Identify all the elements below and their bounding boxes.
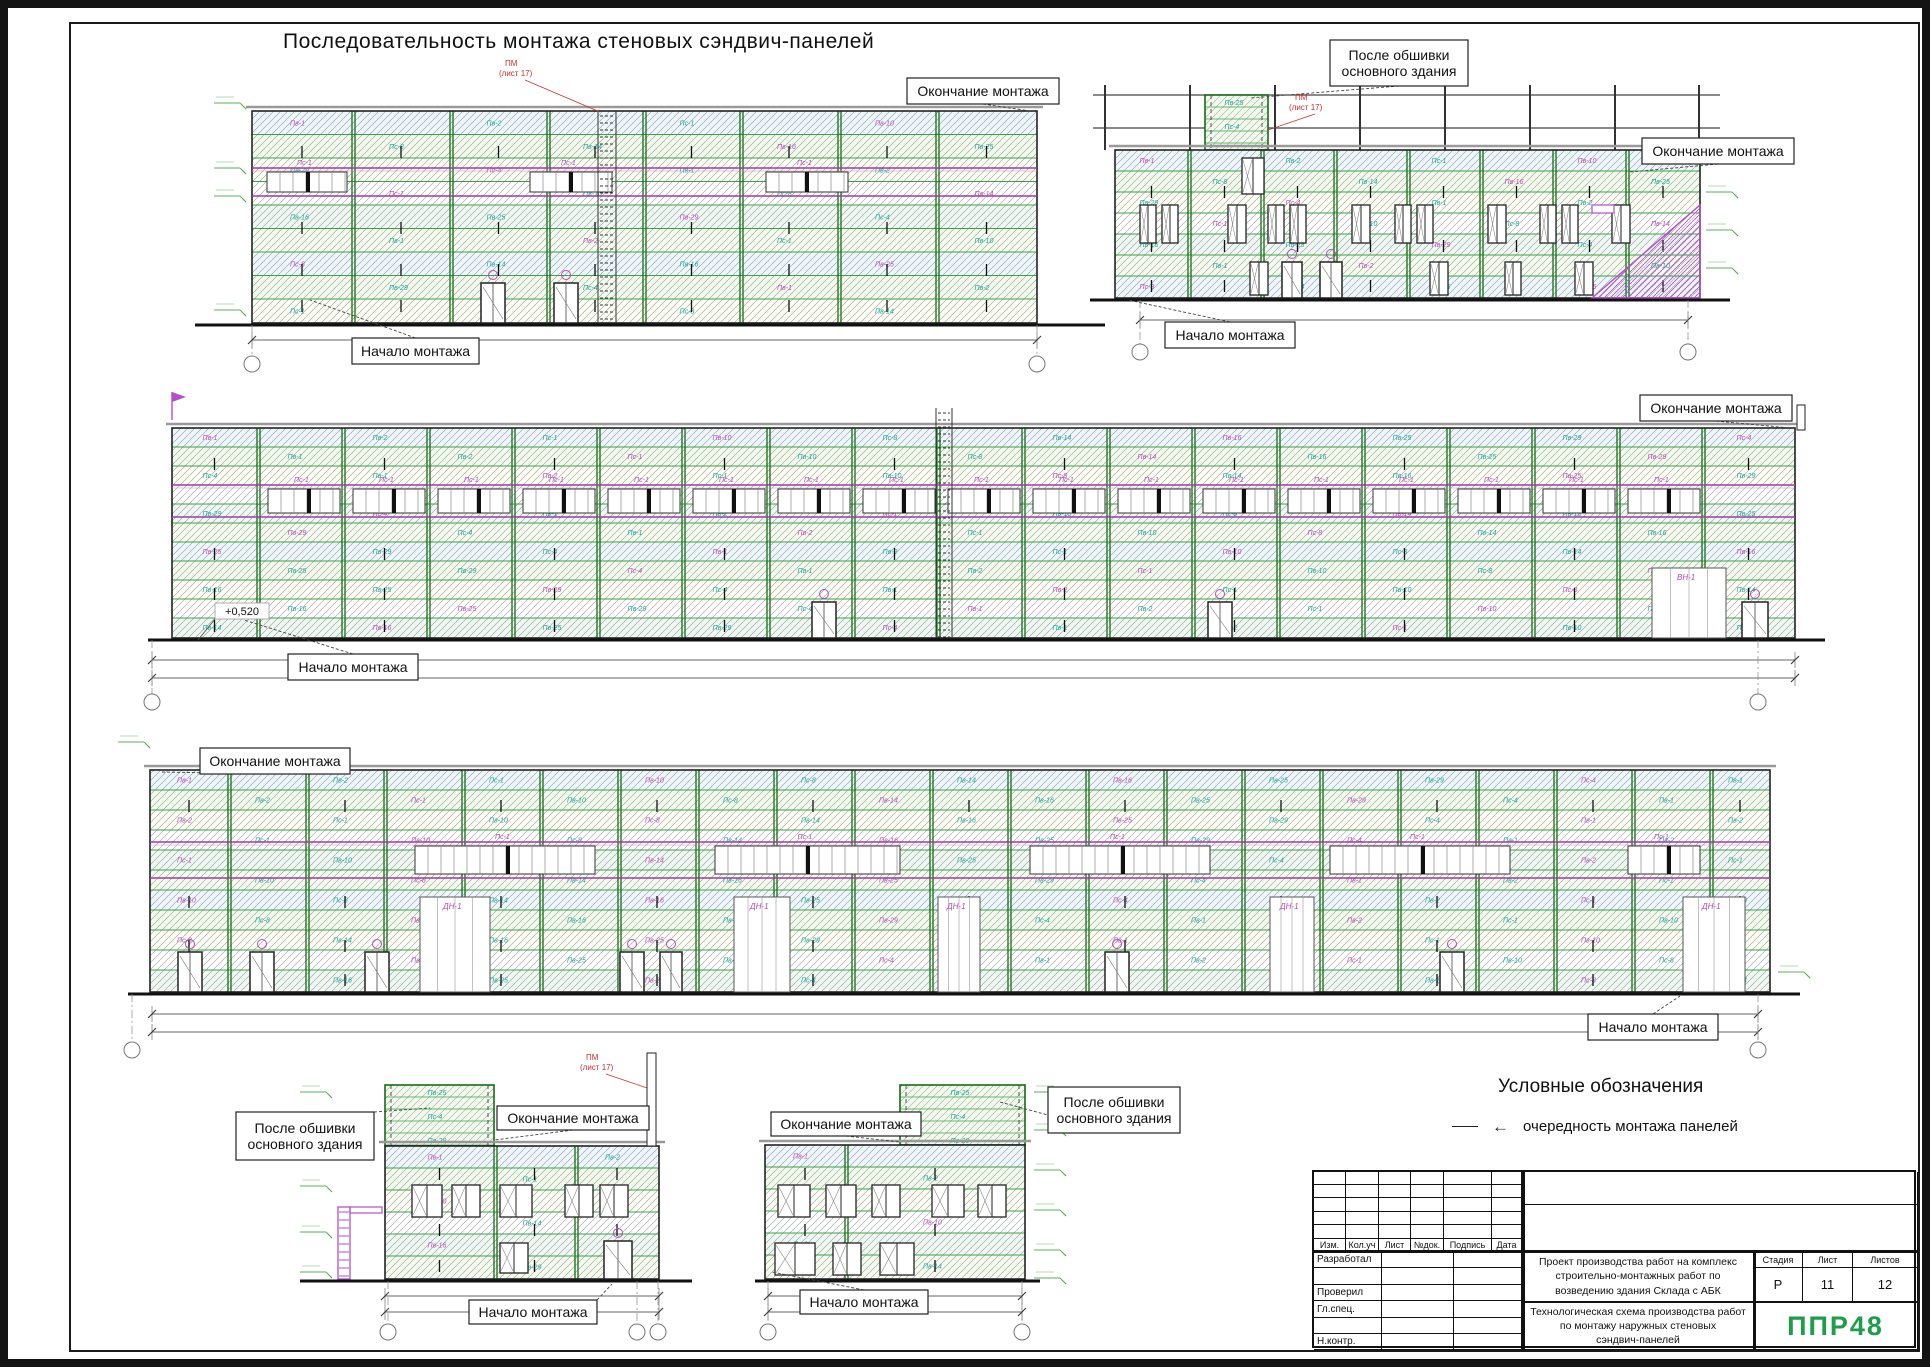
panel-mark: Пв-1 bbox=[1035, 957, 1050, 964]
panel-mark: Пв-25 bbox=[288, 568, 307, 575]
legend-title: Условные обозначения bbox=[1498, 1076, 1703, 1098]
panel-mark: Пв-14 bbox=[975, 191, 994, 198]
band-panel-mark: Пс-1 bbox=[1410, 834, 1425, 841]
panel-mark: Пв-16 bbox=[680, 262, 699, 269]
panel-mark: Пв-29 bbox=[628, 606, 647, 613]
band-panel-mark: Пс-1 bbox=[798, 834, 813, 841]
band-panel-mark: Пс-1 bbox=[974, 477, 989, 484]
gate-label: ДН-1 bbox=[442, 902, 462, 911]
callout-text: Окончание монтажа bbox=[1652, 143, 1784, 159]
band-panel-mark: Пс-1 bbox=[1144, 477, 1159, 484]
panel-mark: Пс-4 bbox=[798, 606, 813, 613]
panel-mark: Пв-25 bbox=[1191, 797, 1210, 804]
callout-text: Начало монтажа bbox=[478, 1304, 587, 1320]
panel-mark: Пс-1 bbox=[1347, 957, 1362, 964]
panel-mark: Пс-1 bbox=[1213, 221, 1228, 228]
band-panel-mark: Пс-1 bbox=[1229, 477, 1244, 484]
window-band bbox=[353, 489, 425, 513]
project-title-line: Проект производства работ на комплекс bbox=[1539, 1255, 1737, 1269]
axis-mark bbox=[760, 1324, 776, 1340]
axis-mark bbox=[380, 1324, 396, 1340]
role-label: Н.контр. bbox=[1314, 1334, 1382, 1350]
panel-mark: Пв-16 bbox=[428, 1243, 447, 1250]
role-label bbox=[1314, 1318, 1382, 1334]
panel-mark: Пс-4 bbox=[1578, 242, 1593, 249]
panel-mark: Пс-4 bbox=[1425, 817, 1440, 824]
panel-mark: Пв-29 bbox=[1191, 837, 1210, 844]
mast-callout: (лист 17) bbox=[1289, 103, 1323, 112]
panel-mark: Пс-1 bbox=[628, 454, 643, 461]
panel-mark: Пв-1 bbox=[389, 238, 404, 245]
panel-mark: Пв-2 bbox=[333, 777, 348, 784]
panel-mark: Пв-10 bbox=[177, 897, 196, 904]
callout-text: Начало монтажа bbox=[809, 1294, 918, 1310]
panel-mark: Пв-29 bbox=[1737, 473, 1756, 480]
elevation-value: +0,520 bbox=[225, 606, 259, 618]
panel-mark: Пв-2 bbox=[1347, 917, 1362, 924]
band-panel-mark: Пс-1 bbox=[1059, 477, 1074, 484]
titleblock-divider bbox=[1314, 1251, 1918, 1253]
band-panel-mark: Пс-1 bbox=[719, 477, 734, 484]
callout-text: Начало монтажа bbox=[298, 659, 407, 675]
revision-cell bbox=[1492, 1225, 1523, 1239]
panel-mark: Пв-10 bbox=[567, 797, 586, 804]
panel-mark: Пв-2 bbox=[1578, 200, 1593, 207]
panel-mark: Пв-29 bbox=[458, 568, 477, 575]
elevations-canvas: Пв-1Пв-2Пс-1Пв-10Пс-8Пв-14Пв-16Пв-25Пв-2… bbox=[0, 0, 1930, 1367]
band-panel-mark: Пс-1 bbox=[464, 477, 479, 484]
panel-mark: Пс-8 bbox=[680, 309, 695, 316]
panel-mark: Пв-1 bbox=[1140, 158, 1155, 165]
legend-item-label: очередность монтажа панелей bbox=[1523, 1118, 1738, 1135]
panel-mark: Пс-8 bbox=[1581, 977, 1596, 984]
callout-text: основного здания bbox=[248, 1136, 363, 1152]
panel-mark: Пв-1 bbox=[177, 777, 192, 784]
panel-mark: Пв-10 bbox=[1393, 587, 1412, 594]
panel-mark: Пс-8 bbox=[1393, 549, 1408, 556]
callout-text: Окончание монтажа bbox=[917, 83, 1049, 99]
signature-cell bbox=[1382, 1252, 1454, 1268]
panel-mark: Пв-16 bbox=[879, 837, 898, 844]
doc-code-cell bbox=[1523, 1205, 1918, 1252]
signature-cell bbox=[1382, 1318, 1454, 1334]
sheets-value: 12 bbox=[1853, 1268, 1918, 1303]
panel-mark: Пв-10 bbox=[1223, 549, 1242, 556]
legend-line-symbol bbox=[1452, 1126, 1478, 1127]
panel-mark: Пв-10 bbox=[1478, 606, 1497, 613]
revision-cell bbox=[1379, 1225, 1411, 1239]
signature-cell bbox=[1382, 1268, 1454, 1285]
band-panel-mark: Пс-1 bbox=[379, 477, 394, 484]
project-title-line: возведению здания Склада с АБК bbox=[1555, 1284, 1721, 1298]
panel-mark: Пв-14 bbox=[489, 897, 508, 904]
panel-mark: Пв-1 bbox=[1053, 625, 1068, 632]
mast bbox=[647, 1053, 656, 1146]
panel-mark: Пс-8 bbox=[723, 797, 738, 804]
panel-mark: Пв-14 bbox=[1053, 435, 1072, 442]
panel-mark: Пв-2 bbox=[1359, 263, 1374, 270]
panel-mark: Пс-1 bbox=[177, 857, 192, 864]
panel-mark: Пв-16 bbox=[1223, 435, 1242, 442]
panel-mark: Пв-29 bbox=[1648, 454, 1667, 461]
panel-mark: Пв-25 bbox=[1225, 100, 1244, 107]
band-panel-mark: Пс-1 bbox=[1569, 477, 1584, 484]
callout-text: Начало монтажа bbox=[361, 343, 470, 359]
panel-mark: Пв-25 bbox=[543, 625, 562, 632]
panel-mark: Пс-1 bbox=[1503, 917, 1518, 924]
panel-mark: Пв-29 bbox=[879, 917, 898, 924]
panel-mark: Пв-29 bbox=[1269, 817, 1288, 824]
panel-mark: Пв-14 bbox=[1563, 549, 1582, 556]
mast bbox=[1797, 405, 1805, 430]
revision-cell bbox=[1492, 1212, 1523, 1225]
panel-mark: Пв-1 bbox=[1213, 263, 1228, 270]
panel-mark: Пв-25 bbox=[1113, 817, 1132, 824]
revision-cell bbox=[1314, 1185, 1346, 1198]
revision-cell bbox=[1492, 1185, 1523, 1198]
callout-text: Окончание монтажа bbox=[507, 1110, 639, 1126]
panel-mark: Пс-8 bbox=[1140, 284, 1155, 291]
revision-cell bbox=[1379, 1185, 1411, 1198]
panel-mark: Пв-25 bbox=[951, 1090, 970, 1097]
panel-mark: Пв-29 bbox=[373, 549, 392, 556]
panel-mark: Пс-4 bbox=[543, 549, 558, 556]
panel-mark: Пв-14 bbox=[1359, 179, 1378, 186]
stage-header: Стадия bbox=[1754, 1252, 1803, 1268]
panel-mark: Пс-1 bbox=[543, 435, 558, 442]
revision-cell bbox=[1346, 1212, 1379, 1225]
gate-label: ДН-1 bbox=[1701, 902, 1721, 911]
mast-callout: ПМ bbox=[586, 1053, 599, 1062]
revision-cell bbox=[1411, 1225, 1444, 1239]
window-band bbox=[693, 489, 765, 513]
panel-mark: Пс-4 bbox=[1225, 124, 1240, 131]
axis-mark bbox=[1750, 694, 1766, 710]
panel-mark: Пв-25 bbox=[1478, 454, 1497, 461]
window-band bbox=[1033, 489, 1105, 513]
window-band bbox=[1288, 489, 1360, 513]
revision-cell bbox=[1492, 1172, 1523, 1185]
panel-mark: Пв-1 bbox=[1581, 817, 1596, 824]
revision-cell bbox=[1444, 1225, 1492, 1239]
panel-mark: Пв-25 bbox=[487, 215, 506, 222]
window-band bbox=[863, 489, 935, 513]
revision-cell bbox=[1444, 1198, 1492, 1212]
panel-mark: Пс-8 bbox=[1213, 179, 1228, 186]
panel-mark: Пс-1 bbox=[1425, 937, 1440, 944]
panel-mark: Пв-14 bbox=[645, 857, 664, 864]
revision-cell bbox=[1411, 1198, 1444, 1212]
panel-mark: Пв-14 bbox=[923, 1264, 942, 1271]
panel-mark: Пв-25 bbox=[203, 549, 222, 556]
callout-text: основного здания bbox=[1057, 1110, 1172, 1126]
panel-mark: Пв-1 bbox=[290, 121, 305, 128]
panel-mark: Пв-29 bbox=[1425, 777, 1444, 784]
project-title: Проект производства работ на комплексстр… bbox=[1523, 1252, 1754, 1303]
revision-cell bbox=[1411, 1185, 1444, 1198]
window-band bbox=[1458, 489, 1530, 513]
panel-mark: Пв-29 bbox=[801, 937, 820, 944]
panel-mark: Пс-1 bbox=[389, 191, 404, 198]
panel-mark: Пс-1 bbox=[1138, 568, 1153, 575]
role-label: Разработал bbox=[1314, 1252, 1382, 1268]
panel-mark: Пс-1 bbox=[411, 797, 426, 804]
callout-text: Начало монтажа bbox=[1175, 327, 1284, 343]
panel-mark: Пв-1 bbox=[793, 1154, 808, 1161]
panel-mark: Пв-2 bbox=[373, 435, 388, 442]
panel-mark: Пв-1 bbox=[1191, 917, 1206, 924]
panel-mark: Пс-8 bbox=[1478, 568, 1493, 575]
panel-mark: Пс-4 bbox=[875, 215, 890, 222]
panel-mark: Пс-4 bbox=[1035, 917, 1050, 924]
window-band bbox=[438, 489, 510, 513]
panel-mark: Пв-25 bbox=[1651, 179, 1670, 186]
panel-mark: Пв-10 bbox=[713, 435, 732, 442]
panel-mark: Пс-1 bbox=[290, 309, 305, 316]
date-cell bbox=[1454, 1318, 1523, 1334]
titleblock-divider bbox=[1523, 1172, 1525, 1350]
panel-mark: Пв-16 bbox=[1113, 777, 1132, 784]
revision-cell bbox=[1411, 1172, 1444, 1185]
window-band bbox=[608, 489, 680, 513]
panel-mark: Пв-1 bbox=[777, 285, 792, 292]
callout-text: основного здания bbox=[1342, 63, 1457, 79]
panel-mark: Пс-4 bbox=[583, 285, 598, 292]
panel-mark: Пв-14 bbox=[583, 144, 602, 151]
panel-mark: Пв-1 bbox=[1659, 797, 1674, 804]
panel-mark: Пв-14 bbox=[957, 777, 976, 784]
panel-mark: Пс-4 bbox=[1113, 897, 1128, 904]
revision-cell bbox=[1379, 1212, 1411, 1225]
panel-mark: Пв-10 bbox=[798, 454, 817, 461]
band-panel-mark: Пс-1 bbox=[1654, 477, 1669, 484]
gate-label: ДН-1 bbox=[946, 902, 966, 911]
panel-mark: Пв-14 bbox=[523, 1221, 542, 1228]
axis-mark bbox=[1750, 1042, 1766, 1058]
panel-mark: Пс-8 bbox=[1505, 221, 1520, 228]
band-panel-mark: Пс-1 bbox=[297, 160, 312, 167]
panel-mark: Пв-16 bbox=[333, 977, 352, 984]
sheet-value: 11 bbox=[1803, 1268, 1853, 1303]
callout-text: Начало монтажа bbox=[1598, 1019, 1707, 1035]
panel-mark: Пв-14 bbox=[723, 837, 742, 844]
panel-mark: Пв-2 bbox=[458, 454, 473, 461]
panel-mark: Пв-14 bbox=[1651, 221, 1670, 228]
panel-mark: Пв-29 bbox=[1432, 242, 1451, 249]
date-cell bbox=[1454, 1285, 1523, 1301]
panel-mark: Пв-10 bbox=[1138, 530, 1157, 537]
panel-mark: Пс-8 bbox=[968, 454, 983, 461]
panel-mark: Пв-25 bbox=[489, 977, 508, 984]
panel-mark: Пв-1 bbox=[288, 454, 303, 461]
panel-mark: Пв-16 bbox=[290, 215, 309, 222]
panel-mark: Пс-4 bbox=[1347, 837, 1362, 844]
band-panel-mark: Пс-1 bbox=[549, 477, 564, 484]
band-panel-mark: Пс-1 bbox=[889, 477, 904, 484]
callout-text: Окончание монтажа bbox=[780, 1116, 912, 1132]
project-title-line: строительно-монтажных работ по bbox=[1556, 1269, 1721, 1283]
panel-mark: Пс-8 bbox=[389, 144, 404, 151]
window-band bbox=[1628, 489, 1700, 513]
panel-mark: Пс-4 bbox=[628, 568, 643, 575]
panel-mark: Пв-29 bbox=[1347, 797, 1366, 804]
band-panel-mark: Пс-1 bbox=[495, 834, 510, 841]
panel-mark: Пс-1 bbox=[1053, 549, 1068, 556]
panel-mark: Пв-10 bbox=[489, 817, 508, 824]
panel-mark: Пв-1 bbox=[1503, 837, 1518, 844]
panel-mark: Пс-8 bbox=[177, 937, 192, 944]
panel-mark: Пв-1 bbox=[713, 549, 728, 556]
panel-mark: Пв-2 bbox=[923, 1176, 938, 1183]
panel-mark: Пс-4 bbox=[951, 1114, 966, 1121]
panel-mark: Пс-8 bbox=[801, 777, 816, 784]
revision-cell bbox=[1379, 1198, 1411, 1212]
panel-mark: Пв-2 bbox=[975, 285, 990, 292]
panel-mark: Пв-10 bbox=[875, 121, 894, 128]
panel-mark: Пв-1 bbox=[1432, 200, 1447, 207]
mast-callout: (лист 17) bbox=[580, 1063, 614, 1072]
panel-mark: Пв-1 bbox=[428, 1155, 443, 1162]
panel-mark: Пв-25 bbox=[428, 1090, 447, 1097]
panel-mark: Пв-29 bbox=[389, 285, 408, 292]
panel-mark: Пс-1 bbox=[333, 817, 348, 824]
panel-mark: Пв-10 bbox=[411, 837, 430, 844]
panel-mark: Пв-2 bbox=[1138, 606, 1153, 613]
revision-cell bbox=[1314, 1212, 1346, 1225]
panel-mark: Пв-25 bbox=[645, 937, 664, 944]
panel-mark: Пв-16 bbox=[957, 817, 976, 824]
band-panel-mark: Пс-1 bbox=[1314, 477, 1329, 484]
panel-mark: Пв-2 bbox=[1728, 817, 1743, 824]
role-label bbox=[1314, 1268, 1382, 1285]
panel-mark: Пв-16 bbox=[645, 897, 664, 904]
panel-mark: Пс-4 bbox=[713, 587, 728, 594]
panel-mark: Пв-16 bbox=[777, 144, 796, 151]
panel-mark: Пв-25 bbox=[458, 606, 477, 613]
sheet-main-title: Последовательность монтажа стеновых сэнд… bbox=[283, 30, 874, 54]
panel-mark: Пв-2 bbox=[1053, 587, 1068, 594]
panel-mark: Пв-25 bbox=[975, 144, 994, 151]
window-band bbox=[1118, 489, 1190, 513]
band-panel-mark: Пс-1 bbox=[561, 160, 576, 167]
revision-cell bbox=[1346, 1172, 1379, 1185]
axis-mark bbox=[1132, 344, 1148, 360]
panel-mark: Пв-1 bbox=[1728, 777, 1743, 784]
panel-mark: Пв-16 bbox=[1308, 454, 1327, 461]
panel-mark: Пв-25 bbox=[567, 957, 586, 964]
panel-mark: Пс-8 bbox=[1659, 957, 1674, 964]
panel-mark: Пс-8 bbox=[567, 837, 582, 844]
signature-cell bbox=[1382, 1285, 1454, 1301]
panel-mark: Пв-25 bbox=[1035, 837, 1054, 844]
revision-cell bbox=[1411, 1212, 1444, 1225]
window-band bbox=[415, 846, 595, 874]
panel-mark: Пс-4 bbox=[801, 977, 816, 984]
panel-mark: Пв-29 bbox=[713, 625, 732, 632]
axis-mark bbox=[244, 356, 260, 372]
panel-mark: Пв-10 bbox=[1581, 937, 1600, 944]
panel-mark: Пв-2 bbox=[1425, 897, 1440, 904]
sheet-header: Лист bbox=[1803, 1252, 1853, 1268]
panel-mark: Пв-1 bbox=[968, 606, 983, 613]
revision-cell bbox=[1314, 1198, 1346, 1212]
axis-mark bbox=[144, 694, 160, 710]
role-label: Проверил bbox=[1314, 1285, 1382, 1301]
panel-mark: Пс-1 bbox=[1581, 897, 1596, 904]
band-panel-mark: Пс-1 bbox=[1654, 834, 1669, 841]
panel-mark: Пв-2 bbox=[968, 568, 983, 575]
callout-text: После обшивки bbox=[255, 1120, 356, 1136]
mast-callout: (лист 17) bbox=[499, 69, 533, 78]
panel-mark: Пв-16 bbox=[288, 606, 307, 613]
panel-mark: Пс-1 bbox=[489, 777, 504, 784]
panel-mark: Пв-2 bbox=[583, 238, 598, 245]
panel-mark: Пс-8 bbox=[290, 262, 305, 269]
revision-cell bbox=[1379, 1172, 1411, 1185]
panel-mark: Пв-16 bbox=[1505, 179, 1524, 186]
stage-value: Р bbox=[1754, 1268, 1803, 1303]
panel-mark: Пв-10 bbox=[1503, 957, 1522, 964]
panel-mark: Пс-4 bbox=[1581, 777, 1596, 784]
panel-mark: Пв-25 bbox=[875, 262, 894, 269]
axis-mark bbox=[1029, 356, 1045, 372]
panel-mark: Пв-16 bbox=[1035, 797, 1054, 804]
revision-cell bbox=[1492, 1198, 1523, 1212]
panel-mark: Пс-1 bbox=[1728, 857, 1743, 864]
panel-mark: Пв-10 bbox=[1659, 917, 1678, 924]
date-cell bbox=[1454, 1252, 1523, 1268]
panel-mark: Пв-2 bbox=[1191, 957, 1206, 964]
window-band bbox=[1030, 846, 1210, 874]
panel-mark: Пв-2 bbox=[1286, 158, 1301, 165]
date-cell bbox=[1454, 1301, 1523, 1318]
panel-mark: Пв-29 bbox=[543, 587, 562, 594]
window-band bbox=[523, 489, 595, 513]
titleblock-divider bbox=[1754, 1252, 1756, 1350]
panel-mark: Пв-14 bbox=[1138, 454, 1157, 461]
panel-mark: Пв-2 bbox=[255, 797, 270, 804]
band-panel-mark: Пс-1 bbox=[1399, 477, 1414, 484]
panel-mark: Пв-16 bbox=[1737, 549, 1756, 556]
panel-mark: Пв-25 bbox=[373, 587, 392, 594]
panel-mark: Пс-1 bbox=[777, 238, 792, 245]
panel-mark: Пв-1 bbox=[798, 568, 813, 575]
revision-cell bbox=[1346, 1225, 1379, 1239]
panel-mark: Пс-1 bbox=[523, 1177, 538, 1184]
panel-mark: Пв-2 bbox=[605, 1155, 620, 1162]
window-band bbox=[948, 489, 1020, 513]
callout-text: Окончание монтажа bbox=[209, 753, 341, 769]
panel-mark: Пс-1 bbox=[1308, 606, 1323, 613]
panel-mark: Пс-4 bbox=[1737, 435, 1752, 442]
axis-mark bbox=[629, 1324, 645, 1340]
window-band bbox=[778, 489, 850, 513]
panel-mark: Пв-1 bbox=[203, 435, 218, 442]
panel-mark: Пв-10 bbox=[1308, 568, 1327, 575]
window-band bbox=[1373, 489, 1445, 513]
panel-mark: Пв-16 bbox=[567, 917, 586, 924]
panel-mark: Пс-4 bbox=[1503, 797, 1518, 804]
panel-mark: Пв-16 bbox=[489, 937, 508, 944]
signature-cell bbox=[1382, 1301, 1454, 1318]
panel-mark: Пв-10 bbox=[1563, 625, 1582, 632]
panel-mark: Пс-1 bbox=[680, 121, 695, 128]
drawing-sheet: Последовательность монтажа стеновых сэнд… bbox=[0, 0, 1930, 1367]
mast-callout: ПМ bbox=[1295, 93, 1308, 102]
band-panel-mark: Пс-1 bbox=[1110, 834, 1125, 841]
panel-mark: Пв-2 bbox=[1581, 857, 1596, 864]
legend-arrow-icon: ← bbox=[1492, 1122, 1509, 1132]
